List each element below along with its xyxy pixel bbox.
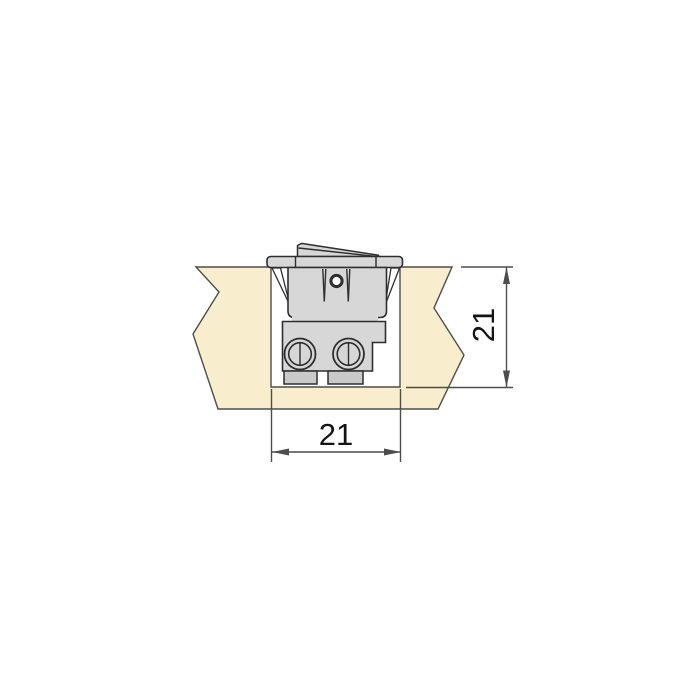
terminal-tab-left — [284, 371, 317, 384]
arrowhead-down — [503, 371, 510, 388]
technical-drawing: 21 21 — [0, 0, 700, 700]
terminal-tab-right — [328, 371, 363, 384]
drawing-canvas: 21 21 — [0, 0, 700, 700]
switch-bezel — [267, 257, 403, 268]
arrowhead-left — [272, 449, 289, 456]
arrowhead-up — [503, 267, 510, 284]
dimension-width-label: 21 — [319, 417, 353, 452]
rocker-switch — [267, 243, 403, 384]
terminal-screw-left — [285, 339, 316, 370]
rocker-actuator — [298, 243, 379, 256]
terminal-screw-right — [333, 339, 364, 370]
dimension-depth-label: 21 — [466, 308, 501, 342]
arrowhead-right — [384, 449, 401, 456]
switch-marking-circle — [331, 275, 342, 286]
